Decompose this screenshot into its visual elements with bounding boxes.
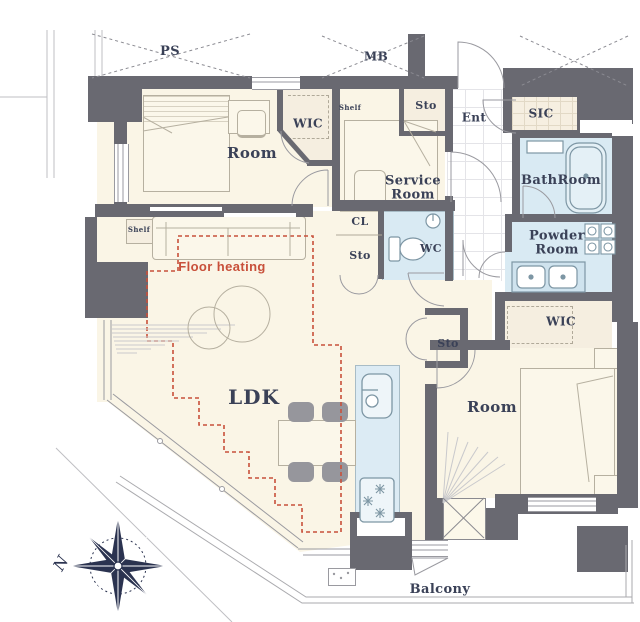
label-sto-right: Sto [437, 338, 459, 350]
hatch-fan-pillar [112, 325, 235, 353]
wic1-diagonal-wall [279, 129, 310, 164]
shaft-x-lines [443, 498, 484, 538]
label-powder-room: Powder Room [515, 230, 599, 259]
label-cl: CL [351, 216, 368, 228]
hatch-fan-room2 [443, 432, 505, 503]
label-wic-right: WIC [546, 315, 576, 328]
label-ps: PS [160, 45, 180, 59]
label-room-right: Room [467, 399, 517, 416]
door-arcs [281, 42, 555, 388]
shaft-cross-topright [520, 36, 628, 86]
compass-north-mark: N [49, 552, 73, 575]
floor-plan: N PS MB Room WIC Shelf Shelf Sto Ent SIC… [0, 0, 640, 622]
label-service-room: Service Room [371, 175, 455, 204]
bed-fold-lines [143, 117, 613, 482]
label-floor-heating: Floor heating [178, 260, 266, 274]
kitchen-stove [360, 478, 394, 522]
label-balcony: Balcony [410, 583, 471, 597]
balcony-step-dots [333, 572, 349, 579]
label-sto-mid: Sto [349, 250, 371, 262]
lineart-overlay: N [0, 0, 640, 622]
label-sic: SIC [528, 107, 553, 120]
glass-wall-diagonal [104, 320, 350, 555]
powder-sinks [512, 262, 585, 292]
label-bathroom: BathRoom [521, 174, 601, 188]
label-sto-hall: Sto [415, 100, 437, 112]
label-mb: MB [364, 50, 388, 63]
label-wc: WC [420, 243, 442, 255]
label-ent: Ent [462, 111, 487, 124]
label-ldk: LDK [228, 386, 280, 408]
kitchen-sink [362, 374, 392, 418]
label-shelf-top: Shelf [339, 104, 361, 112]
compass-rose: N [49, 518, 166, 614]
round-tables [188, 286, 270, 349]
label-shelf-left: Shelf [128, 226, 150, 234]
label-wic-top: WIC [293, 117, 323, 130]
floor-heating-outline [147, 236, 341, 532]
label-room-top: Room [227, 145, 277, 162]
